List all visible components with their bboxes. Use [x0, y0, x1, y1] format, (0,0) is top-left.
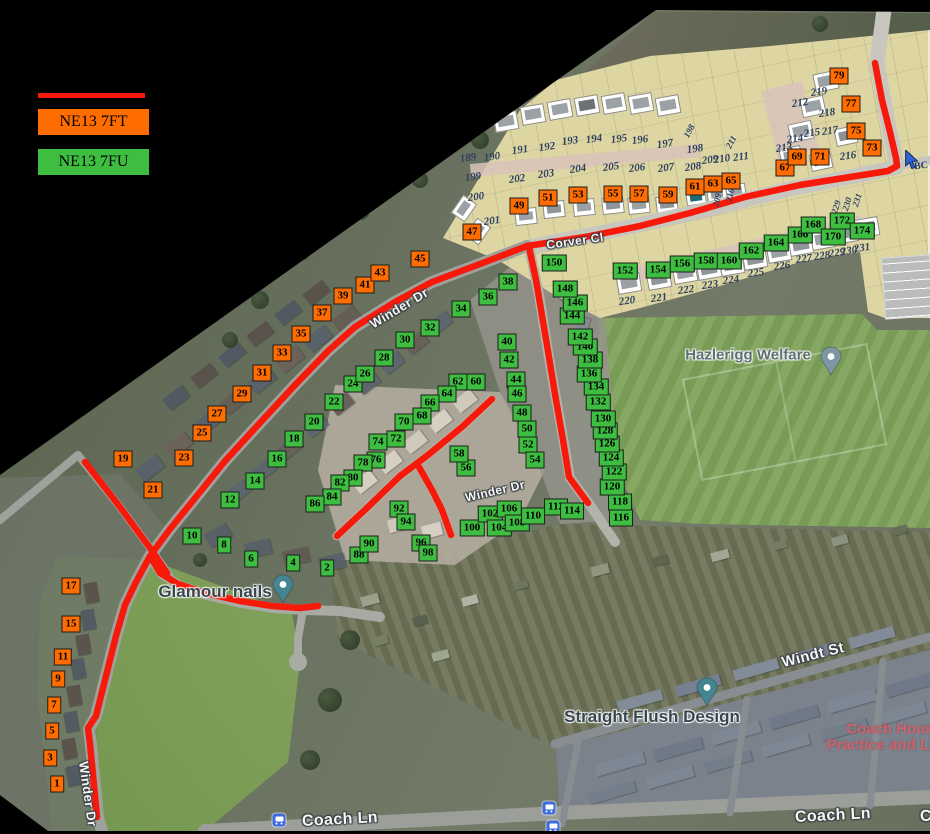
- house-number-marker: 32: [421, 320, 440, 337]
- plot-number: 226: [773, 259, 791, 273]
- poi-label-straight-flush-design: Straight Flush Design: [564, 707, 740, 727]
- house-number-marker: 30: [396, 332, 415, 349]
- house-number-marker: 46: [508, 386, 527, 403]
- plot-number: 197: [656, 137, 674, 151]
- house-number-marker: 51: [539, 190, 558, 207]
- rooftop: [331, 304, 361, 332]
- house-number-marker: 59: [659, 187, 678, 204]
- plot-number: 210: [713, 152, 731, 166]
- house-number-marker: 116: [609, 510, 633, 527]
- rooftop: [274, 300, 302, 326]
- house-number-marker: 10: [183, 528, 202, 545]
- house-number-marker: 63: [704, 176, 723, 193]
- house-number-marker: 110: [521, 508, 545, 525]
- house-number-marker: 40: [498, 334, 517, 351]
- house-number-marker: 5: [45, 723, 59, 740]
- plan-house: [493, 110, 520, 133]
- house-number-marker: 94: [397, 514, 416, 531]
- house-number-marker: 69: [788, 149, 807, 166]
- house-number-marker: 55: [604, 186, 623, 203]
- rooftop: [246, 321, 274, 347]
- plan-house-roof: [605, 96, 622, 108]
- plot-number: 211: [732, 150, 749, 164]
- house-number-marker: 12: [221, 492, 240, 509]
- plot-number: 215: [803, 126, 821, 140]
- house-number-marker: 58: [450, 446, 469, 463]
- plot-number: 196: [631, 133, 649, 147]
- legend-label-ne13-7fu: NE13 7FU: [59, 153, 129, 171]
- plot-number: 220: [618, 294, 636, 308]
- house-number-marker: 70: [395, 414, 414, 431]
- house-number-marker: 120: [600, 479, 625, 496]
- poi-pin-glamour-nails: [272, 574, 294, 609]
- house-number-marker: 42: [500, 352, 519, 369]
- house-number-marker: 26: [356, 366, 375, 383]
- tree: [318, 688, 342, 712]
- tree: [300, 750, 320, 770]
- house-number-marker: 50: [518, 421, 537, 438]
- house-number-marker: 45: [411, 251, 430, 268]
- tree: [417, 67, 443, 93]
- house-number-marker: 35: [292, 326, 311, 343]
- house-number-marker: 31: [253, 365, 272, 382]
- plot-number: 191: [511, 143, 529, 157]
- plan-house-roof: [524, 107, 541, 119]
- rooftop: [162, 385, 190, 411]
- plan-house-roof: [551, 102, 568, 114]
- house-number-marker: 37: [313, 305, 332, 322]
- plot-number: 199: [464, 170, 482, 184]
- plot-number: 201: [483, 214, 501, 228]
- tree: [289, 239, 311, 261]
- house-number-marker: 36: [479, 289, 498, 306]
- parking-area: [881, 254, 930, 319]
- house-number-marker: 6: [244, 551, 258, 568]
- house-number-marker: 72: [387, 431, 406, 448]
- house-number-marker: 68: [413, 408, 432, 425]
- tree: [358, 98, 382, 122]
- house-number-marker: 64: [438, 386, 457, 403]
- plot-number: 222: [677, 283, 695, 297]
- house-number-marker: 158: [694, 253, 719, 270]
- plot-number: 225: [747, 266, 765, 280]
- house-number-marker: 29: [233, 386, 252, 403]
- house-number-marker: 3: [43, 750, 57, 767]
- tree: [550, 20, 570, 40]
- house-number-marker: 98: [419, 545, 438, 562]
- house-number-marker: 61: [686, 179, 705, 196]
- house-number-marker: 156: [670, 256, 695, 273]
- house-number-marker: 86: [306, 496, 325, 513]
- house-number-marker: 21: [144, 482, 163, 499]
- rooftop: [190, 363, 218, 389]
- mouse-cursor-icon: [903, 150, 920, 175]
- house-number-marker: 23: [175, 450, 194, 467]
- plot-number: 207: [657, 161, 675, 175]
- house-number-marker: 148: [553, 281, 578, 298]
- plan-house: [628, 92, 655, 115]
- plot-number: 189: [459, 151, 477, 165]
- street-label: Coach Ln: [795, 805, 872, 827]
- house-number-marker: 33: [273, 345, 292, 362]
- plot-number: 204: [569, 162, 587, 176]
- house-number-marker: 74: [369, 434, 388, 451]
- plan-house: [574, 94, 601, 117]
- plot-number: 202: [508, 172, 526, 186]
- house-number-marker: 48: [513, 405, 532, 422]
- house-number-marker: 164: [764, 235, 789, 252]
- house-number-marker: 53: [569, 187, 588, 204]
- plot-number: 193: [561, 134, 579, 148]
- house-number-marker: 118: [608, 494, 632, 511]
- tree: [812, 16, 828, 32]
- plot-number: 200: [467, 190, 485, 204]
- tree: [251, 291, 269, 309]
- house-number-marker: 132: [586, 394, 611, 411]
- house-number-marker: 49: [510, 198, 529, 215]
- house-number-marker: 114: [560, 503, 584, 520]
- legend-item-ne13-7fu: NE13 7FU: [38, 149, 149, 175]
- house-number-marker: 65: [722, 173, 741, 190]
- house-number-marker: 71: [811, 149, 830, 166]
- house-number-marker: 152: [613, 263, 638, 280]
- house-number-marker: 160: [717, 253, 742, 270]
- tree: [350, 200, 370, 220]
- house-number-marker: 11: [54, 649, 72, 666]
- house-number-marker: 142: [568, 329, 593, 346]
- house-number-marker: 38: [499, 274, 518, 291]
- house-number-marker: 34: [452, 301, 471, 318]
- bus-stop-icon: [547, 821, 560, 834]
- house-number-marker: 14: [246, 473, 265, 490]
- plot-number: 216: [839, 149, 857, 163]
- house-number-marker: 18: [285, 431, 304, 448]
- plot-number: 198: [686, 142, 704, 156]
- house-number-marker: 17: [62, 578, 81, 595]
- plot-number: 208: [684, 160, 702, 174]
- plan-house-roof: [659, 98, 676, 110]
- house-number-marker: 28: [375, 350, 394, 367]
- plot-number: 231: [853, 241, 871, 255]
- legend-item-ne13-7ft: NE13 7FT: [38, 109, 149, 135]
- tree: [305, 135, 335, 165]
- house-number-marker: 25: [193, 425, 212, 442]
- tree: [471, 131, 489, 149]
- plot-number: 212: [791, 96, 809, 110]
- tree: [412, 172, 428, 188]
- house-number-marker: 170: [821, 229, 846, 246]
- house-number-marker: 57: [630, 186, 649, 203]
- house-number-marker: 15: [62, 616, 81, 633]
- house-number-marker: 7: [47, 697, 61, 714]
- house-number-marker: 54: [526, 452, 545, 469]
- house-number-marker: 16: [268, 451, 287, 468]
- house-number-marker: 43: [371, 265, 390, 282]
- house-number-marker: 9: [51, 671, 65, 688]
- plot-number: 217: [821, 124, 839, 138]
- house-number-marker: 4: [286, 555, 300, 572]
- plan-house-roof: [578, 98, 595, 110]
- bus-stop-icon: [543, 802, 556, 815]
- plot-number: 190: [483, 150, 501, 164]
- poi-label-coach-house-practice-line2: Practice and La: [827, 737, 930, 754]
- house-number-marker: 47: [463, 224, 482, 241]
- house-number-marker: 162: [739, 243, 764, 260]
- road: [298, 610, 303, 660]
- house-number-marker: 73: [863, 140, 882, 157]
- plot-number: 224: [722, 273, 740, 287]
- house-number-marker: 1: [50, 776, 64, 793]
- house-number-marker: 77: [842, 96, 861, 113]
- house-number-marker: 150: [542, 255, 567, 272]
- house-number-marker: 75: [847, 123, 866, 140]
- bus-stop-icon: [273, 814, 286, 827]
- house-number-marker: 2: [320, 560, 334, 577]
- plot-number: 194: [585, 132, 603, 146]
- house-number-marker: 90: [360, 536, 379, 553]
- house-number-marker: 174: [850, 223, 875, 240]
- tree: [611, 9, 629, 27]
- house-number-marker: 154: [646, 262, 671, 279]
- poi-label-glamour-nails: Glamour nails: [158, 582, 271, 602]
- plan-house: [655, 94, 682, 117]
- legend-label-ne13-7ft: NE13 7FT: [60, 113, 128, 131]
- poi-label-coach-house-practice-line1: Coach Hous: [846, 721, 930, 738]
- plot-number: 219: [810, 85, 828, 99]
- tree: [489, 39, 511, 61]
- plot-number: 192: [538, 140, 556, 154]
- plot-number: 223: [701, 278, 719, 292]
- plot-number: 227: [795, 252, 813, 266]
- plot-number: 221: [650, 291, 668, 305]
- plot-number: 205: [602, 160, 620, 174]
- house-number-marker: 20: [305, 414, 324, 431]
- annotated-map-canvas: 1891901911921931941951961971981992002012…: [0, 0, 930, 831]
- house-number-marker: 84: [323, 489, 342, 506]
- rooftop: [135, 454, 165, 482]
- house-number-marker: 60: [467, 374, 486, 391]
- house-number-marker: 19: [114, 451, 133, 468]
- tree: [340, 630, 360, 650]
- house-number-marker: 27: [208, 406, 227, 423]
- tree: [193, 553, 207, 567]
- plot-number: 214: [786, 132, 804, 146]
- plot-number: 206: [628, 161, 646, 175]
- plan-house: [520, 103, 547, 126]
- house-number-marker: 39: [334, 288, 353, 305]
- legend-route-swatch: [38, 93, 145, 98]
- tree: [222, 332, 238, 348]
- poi-label-hazlerigg-welfare: Hazlerigg Welfare: [685, 347, 811, 364]
- house-number-marker: 79: [830, 68, 849, 85]
- plot-number: 203: [537, 167, 555, 181]
- house-number-marker: 8: [217, 537, 231, 554]
- plan-house: [601, 92, 628, 115]
- street-label: C: [920, 808, 930, 827]
- legend: NE13 7FT NE13 7FU: [38, 93, 149, 189]
- plan-house: [547, 98, 574, 121]
- street-label: Coach Ln: [302, 809, 379, 831]
- plan-house-roof: [497, 114, 514, 126]
- plot-number: 195: [610, 132, 628, 146]
- house-number-marker: 130: [591, 411, 616, 428]
- plan-house-roof: [632, 96, 649, 108]
- plot-number: 218: [818, 106, 836, 120]
- house-number-marker: 22: [325, 394, 344, 411]
- rooftop: [302, 280, 330, 306]
